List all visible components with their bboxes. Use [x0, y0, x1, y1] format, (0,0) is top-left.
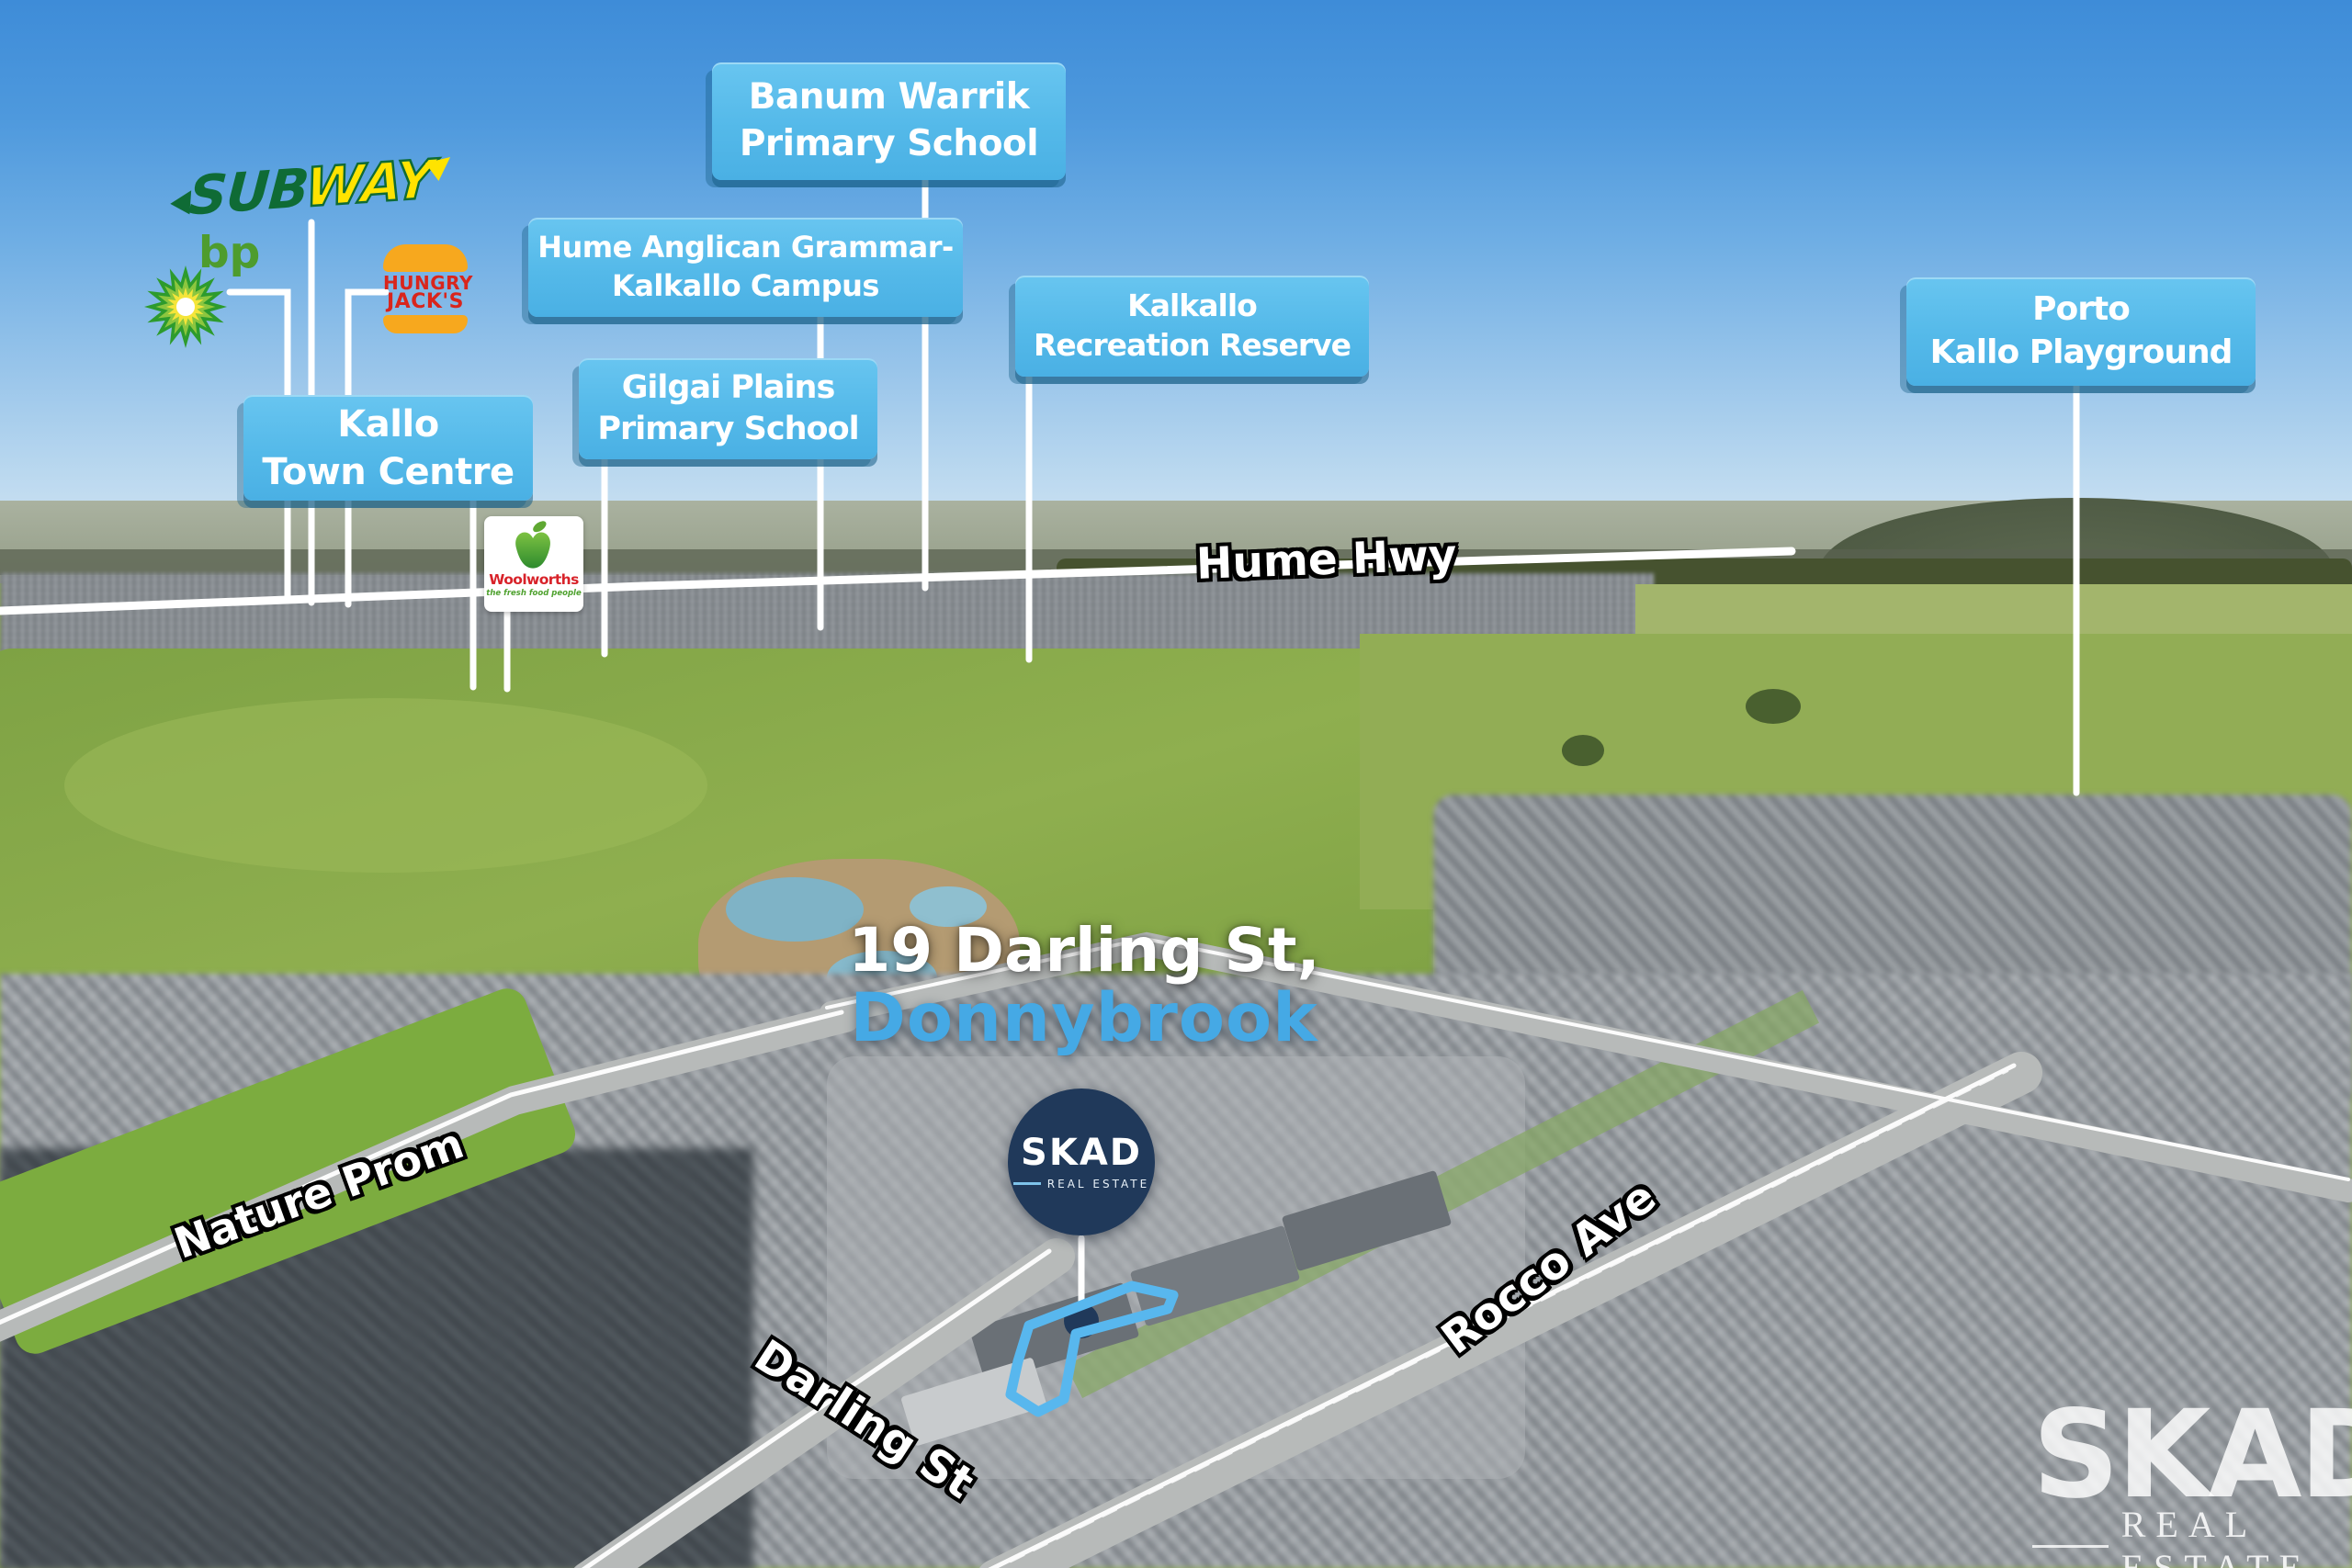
property-address-line1: 19 Darling St,	[790, 919, 1378, 983]
bp-helios-icon	[140, 261, 232, 353]
property-address-title: 19 Darling St, Donnybrook	[790, 919, 1378, 1054]
callout-kallo-town-centre: Kallo Town Centre	[243, 395, 533, 501]
skad-pin-name: SKAD	[1021, 1134, 1142, 1171]
label-hume-hwy: Hume Hwy	[1195, 530, 1457, 590]
woolworths-apple-icon	[508, 520, 560, 573]
callout-line: Gilgai Plains	[622, 367, 835, 410]
hume-hwy-line	[0, 551, 1792, 611]
subway-arrow-left	[169, 190, 191, 216]
callout-line: Porto	[2032, 288, 2130, 332]
skad-pin-subtitle-row: REAL ESTATE	[1013, 1178, 1149, 1190]
hungry-jacks-text-1: HUNGRY	[383, 274, 468, 292]
callout-line: Kalkallo	[1127, 287, 1257, 326]
callout-banum-warrik-primary-school: Banum Warrik Primary School	[712, 62, 1066, 180]
callout-line: Recreation Reserve	[1034, 326, 1351, 366]
callout-line: Primary School	[740, 121, 1038, 168]
woolworths-logo-text: Woolworths	[489, 571, 578, 588]
skad-watermark: SKAD REAL ESTATE	[2032, 1394, 2352, 1568]
callout-line: Banum Warrik	[749, 74, 1030, 121]
callout-line: Kalkallo Campus	[612, 267, 879, 306]
subway-logo-text-way: WAY	[303, 148, 435, 220]
skad-watermark-name: SKAD	[2032, 1394, 2352, 1516]
skad-watermark-line	[2032, 1545, 2109, 1548]
property-outline	[1011, 1286, 1173, 1412]
woolworths-logo-card: Woolworths the fresh food people	[484, 516, 583, 612]
hungry-jacks-logo: HUNGRY JACK'S	[383, 244, 468, 333]
callout-line: Primary School	[597, 409, 858, 451]
callout-line: Hume Anglican Grammar-	[537, 229, 954, 267]
callout-line: Town Centre	[262, 448, 514, 496]
subway-logo-text-sub: SUB	[187, 156, 307, 227]
callout-gilgai-plains-primary-school: Gilgai Plains Primary School	[579, 358, 877, 459]
skad-pin-accent-line	[1013, 1182, 1041, 1185]
property-suburb: Donnybrook	[790, 983, 1378, 1054]
woolworths-tagline: the fresh food people	[486, 589, 581, 598]
callout-line: Kallo	[337, 400, 438, 448]
aerial-location-map: SUBWAY bp HUNGRY JACK'S Woolworths the f…	[0, 0, 2352, 1568]
callout-hume-anglican-grammar: Hume Anglican Grammar- Kalkallo Campus	[528, 218, 963, 317]
callout-kalkallo-recreation-reserve: Kalkallo Recreation Reserve	[1015, 276, 1369, 377]
skad-watermark-subtitle: REAL ESTATE	[2121, 1503, 2352, 1568]
hungry-jacks-bun-top	[383, 244, 468, 272]
callout-line: Kallo Playground	[1930, 332, 2233, 375]
callout-porto-kallo-playground: Porto Kallo Playground	[1906, 277, 2256, 386]
hungry-jacks-bun-bottom	[383, 315, 468, 333]
skad-pin-logo: SKAD REAL ESTATE	[1008, 1089, 1155, 1235]
hungry-jacks-text-2: JACK'S	[383, 292, 468, 312]
map-annotations	[0, 0, 2352, 1568]
skad-pin-subtitle: REAL ESTATE	[1047, 1178, 1149, 1190]
